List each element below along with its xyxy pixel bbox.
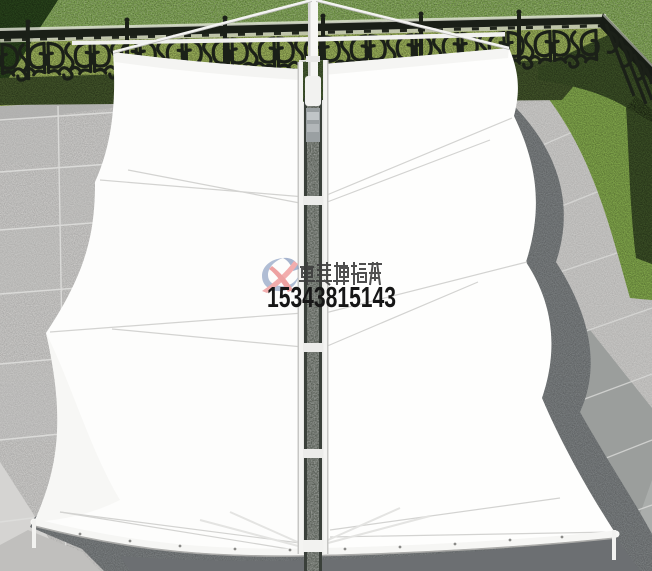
svg-text:15343815143: 15343815143 xyxy=(267,282,396,314)
